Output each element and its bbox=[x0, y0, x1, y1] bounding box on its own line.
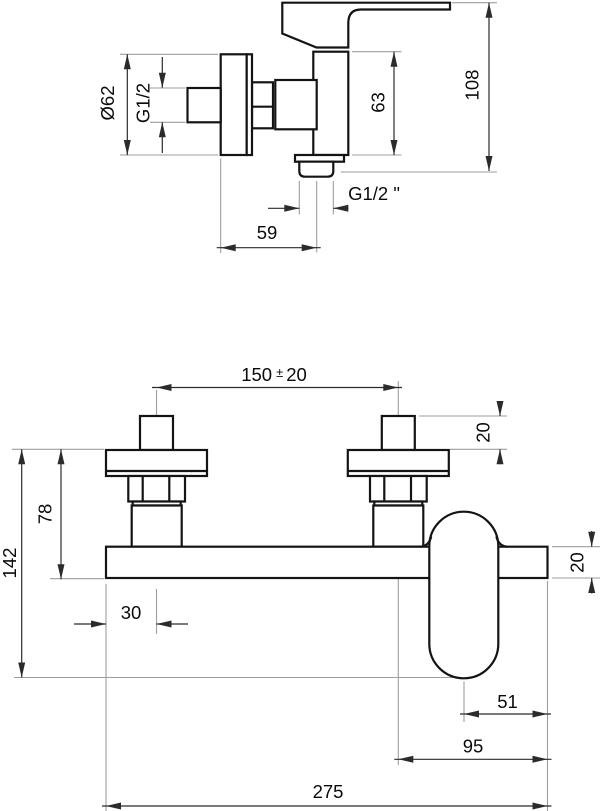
dim-label-body-bar-height: 20 bbox=[567, 552, 588, 573]
front-view-outline bbox=[106, 416, 548, 678]
dim-label-inlet-spacing: 150±20 bbox=[241, 364, 307, 385]
drawing-canvas: Ø62 G1/2 63 108 59 G1/2 " bbox=[0, 0, 600, 811]
dim-label-leg-height: 78 bbox=[35, 504, 56, 525]
valve-body-column bbox=[313, 52, 348, 155]
dim-label-inlet-stub-height: 20 bbox=[473, 422, 494, 443]
inlet-stub bbox=[188, 88, 221, 122]
front-view-dimensions: 150±20 20 78 142 30 20 51 95 275 bbox=[0, 364, 595, 810]
dim-label-body-height: 63 bbox=[368, 92, 389, 113]
left-inlet-assembly bbox=[106, 416, 207, 547]
side-view: Ø62 G1/2 63 108 59 G1/2 " bbox=[97, 3, 497, 253]
left-leg-pipe bbox=[132, 506, 182, 547]
wall-flange bbox=[221, 54, 247, 155]
right-hex-nut bbox=[370, 476, 427, 502]
right-inlet-assembly bbox=[348, 416, 449, 547]
dim-label-overall-height: 108 bbox=[462, 70, 483, 101]
dim-label-outlet-center-to-edge: 51 bbox=[497, 691, 518, 712]
front-view-extension-lines bbox=[12, 381, 600, 811]
wall-flange-rim bbox=[247, 54, 252, 155]
outlet-stub bbox=[299, 162, 333, 177]
dim-label-inlet-center-to-edge: 95 bbox=[463, 736, 484, 757]
dim-label-outlet-thread: G1/2 " bbox=[348, 183, 400, 204]
dim-label-edge-to-inlet-center: 30 bbox=[121, 602, 142, 623]
dim-label-wall-to-outlet: 59 bbox=[257, 222, 278, 243]
mixer-capsule-body bbox=[429, 512, 498, 679]
side-view-outline bbox=[188, 3, 451, 177]
dim-label-inlet-thread: G1/2 bbox=[133, 83, 154, 123]
left-hex-nut bbox=[128, 476, 185, 502]
right-inlet-stub bbox=[382, 416, 415, 450]
shower-mixer-dimension-drawing: Ø62 G1/2 63 108 59 G1/2 " bbox=[0, 0, 600, 811]
valve-body-block bbox=[275, 80, 316, 129]
left-inlet-stub bbox=[140, 416, 173, 450]
right-leg-pipe bbox=[373, 506, 423, 547]
dim-label-overall-height: 142 bbox=[0, 548, 20, 579]
lever-handle bbox=[282, 3, 450, 48]
dim-label-overall-width: 275 bbox=[313, 781, 344, 802]
wall-connector bbox=[252, 82, 273, 128]
front-view: 150±20 20 78 142 30 20 51 95 275 bbox=[0, 364, 600, 811]
dim-label-flange-diameter: Ø62 bbox=[97, 86, 118, 121]
